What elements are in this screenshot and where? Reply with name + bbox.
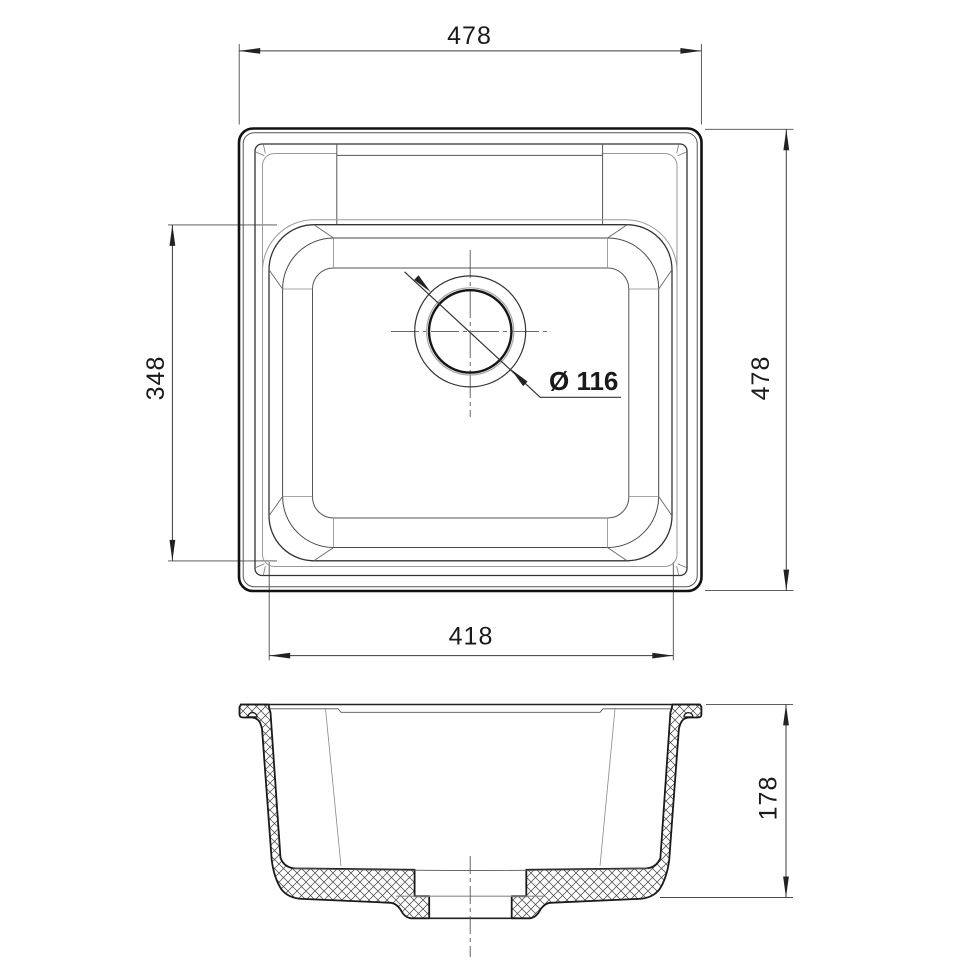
svg-text:Ø 116: Ø 116 [549, 366, 618, 396]
svg-text:418: 418 [449, 623, 494, 651]
svg-text:478: 478 [747, 356, 775, 401]
svg-text:178: 178 [755, 776, 783, 821]
svg-text:478: 478 [447, 22, 492, 50]
svg-text:348: 348 [142, 356, 170, 401]
